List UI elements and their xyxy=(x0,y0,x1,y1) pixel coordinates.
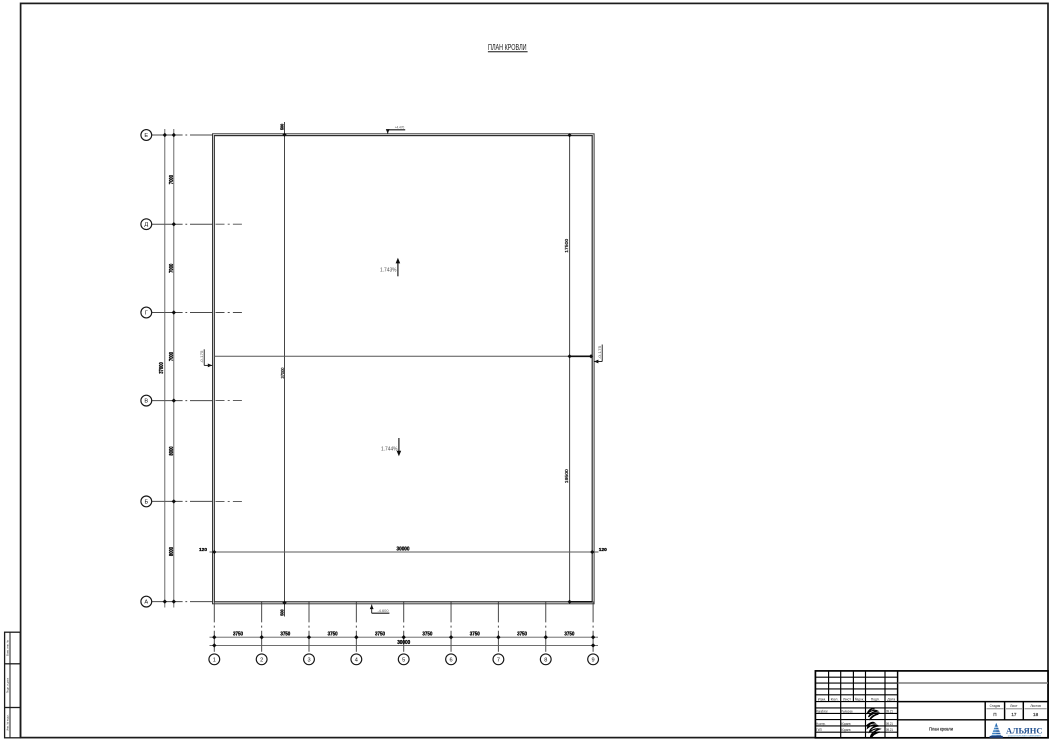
svg-text:Г: Г xyxy=(145,311,148,317)
svg-text:7000: 7000 xyxy=(169,264,175,273)
svg-text:17500: 17500 xyxy=(564,238,569,252)
svg-text:7: 7 xyxy=(497,657,500,663)
svg-text:09.21: 09.21 xyxy=(886,709,893,713)
svg-text:120: 120 xyxy=(199,547,208,552)
svg-text:-4.600: -4.600 xyxy=(378,609,389,613)
svg-text:Юдаев: Юдаев xyxy=(842,721,851,726)
svg-text:-0.175: -0.175 xyxy=(200,351,204,364)
svg-text:Изм.: Изм. xyxy=(818,696,827,701)
svg-text:3750: 3750 xyxy=(233,631,243,637)
svg-text:7000: 7000 xyxy=(169,175,175,184)
svg-text:-0.175: -0.175 xyxy=(598,346,602,360)
svg-text:1.744%: 1.744% xyxy=(381,447,398,453)
svg-text:6: 6 xyxy=(449,657,452,663)
svg-text:500: 500 xyxy=(279,123,284,130)
svg-text:3: 3 xyxy=(307,657,310,663)
svg-text:строительная компания: строительная компания xyxy=(1008,734,1042,737)
svg-text:120: 120 xyxy=(599,547,608,552)
svg-text:+4.470: +4.470 xyxy=(395,126,405,130)
svg-text:Е: Е xyxy=(144,133,148,139)
svg-text:3750: 3750 xyxy=(328,631,338,637)
svg-text:3750: 3750 xyxy=(375,631,385,637)
svg-text:Разработал: Разработал xyxy=(816,708,828,713)
svg-text:500: 500 xyxy=(279,609,284,616)
svg-text:8: 8 xyxy=(544,657,547,663)
svg-text:2: 2 xyxy=(260,657,263,663)
svg-text:Листов: Листов xyxy=(1030,703,1041,708)
svg-text:4: 4 xyxy=(355,657,358,663)
svg-text:Юдаев: Юдаев xyxy=(842,727,851,732)
svg-text:3750: 3750 xyxy=(564,631,574,637)
svg-text:19500: 19500 xyxy=(564,469,569,483)
svg-text:7000: 7000 xyxy=(169,352,175,361)
svg-text:17: 17 xyxy=(1011,712,1017,717)
svg-text:3750: 3750 xyxy=(517,631,527,637)
svg-text:Подп. и дата: Подп. и дата xyxy=(6,677,10,693)
svg-text:Лист: Лист xyxy=(843,696,851,701)
svg-text:3750: 3750 xyxy=(422,631,432,637)
svg-text:В: В xyxy=(144,399,148,405)
svg-text:Дата: Дата xyxy=(887,696,896,701)
svg-text:5: 5 xyxy=(402,657,405,663)
svg-text:Лист: Лист xyxy=(1010,703,1018,708)
svg-text:Кол.: Кол. xyxy=(831,696,839,701)
svg-text:А: А xyxy=(144,600,148,606)
svg-text:30000: 30000 xyxy=(397,640,410,646)
svg-text:План кровли: План кровли xyxy=(929,726,953,732)
svg-text:3750: 3750 xyxy=(470,631,480,637)
svg-text:8000: 8000 xyxy=(169,446,175,455)
svg-text:30000: 30000 xyxy=(397,547,410,553)
svg-text:Б: Б xyxy=(144,499,148,505)
svg-text:Н.контр.: Н.контр. xyxy=(816,721,826,726)
svg-text:ГИП: ГИП xyxy=(816,727,822,732)
svg-text:09.21: 09.21 xyxy=(886,722,893,726)
svg-text:ПЛАН КРОВЛИ: ПЛАН КРОВЛИ xyxy=(488,43,527,52)
svg-text:Стадия: Стадия xyxy=(990,703,1001,708)
svg-text:№док.: №док. xyxy=(855,696,865,701)
svg-text:37000: 37000 xyxy=(159,362,165,374)
svg-text:Рылеснов: Рылеснов xyxy=(842,708,853,713)
svg-text:Взам. инв. №: Взам. инв. № xyxy=(6,640,10,656)
svg-text:9: 9 xyxy=(592,657,595,663)
svg-text:1: 1 xyxy=(213,657,216,663)
svg-text:Инв. № подл.: Инв. № подл. xyxy=(6,714,10,730)
svg-text:09.21: 09.21 xyxy=(886,728,893,732)
svg-text:8000: 8000 xyxy=(169,547,175,556)
svg-text:3750: 3750 xyxy=(280,631,290,637)
svg-text:37000: 37000 xyxy=(280,367,285,378)
svg-text:Д: Д xyxy=(144,222,148,228)
svg-text:1.743%: 1.743% xyxy=(380,268,397,274)
svg-text:18: 18 xyxy=(1033,712,1039,717)
svg-text:Подп.: Подп. xyxy=(871,696,880,701)
svg-text:П: П xyxy=(993,712,996,717)
